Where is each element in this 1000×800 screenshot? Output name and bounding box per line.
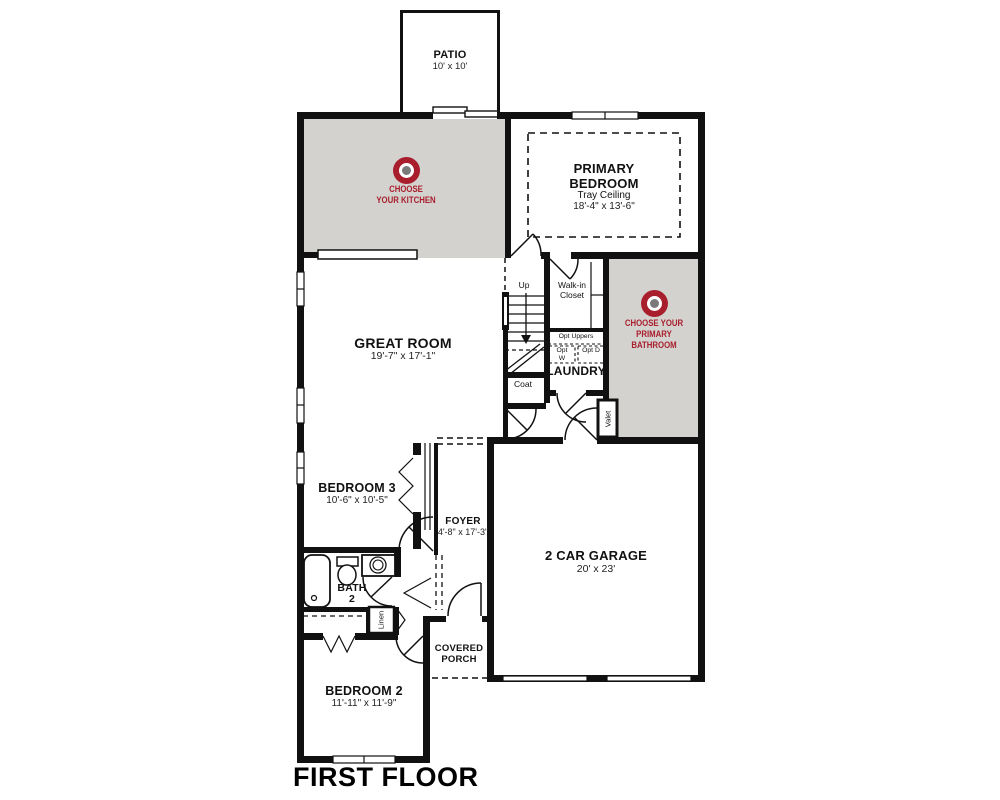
label-covered-porch: COVERED PORCH bbox=[431, 644, 487, 665]
floor-plan-drawing bbox=[0, 0, 1000, 800]
label-primary-bedroom-note: Tray Ceiling bbox=[578, 190, 631, 201]
label-garage: 2 CAR GARAGE bbox=[545, 549, 647, 564]
bath2-door bbox=[363, 577, 392, 606]
floor-title: FIRST FLOOR bbox=[293, 762, 478, 793]
label-opt-dryer: Opt D bbox=[582, 347, 600, 355]
label-bath2-number: 2 bbox=[349, 594, 355, 606]
floor-plan: PATIO 10' x 10' PRIMARY BEDROOM Tray Cei… bbox=[0, 0, 1000, 800]
label-great-room-dims: 19'-7" x 17'-1" bbox=[371, 351, 436, 363]
choose-kitchen-target-icon[interactable] bbox=[393, 157, 420, 184]
hall-door bbox=[506, 409, 536, 439]
label-opt-uppers: Opt Uppers bbox=[559, 333, 594, 341]
choose-kitchen-text-line2[interactable]: YOUR KITCHEN bbox=[376, 196, 435, 207]
label-bedroom2-dims: 11'-11" x 11'-9" bbox=[332, 698, 397, 709]
kitchen-counter bbox=[318, 250, 417, 259]
choose-primary-bath-text-line3[interactable]: BATHROOM bbox=[631, 341, 676, 352]
window bbox=[572, 112, 638, 119]
bedroom3-closet-bifold-door bbox=[399, 458, 413, 514]
label-opt-washer: Opt W bbox=[553, 347, 571, 362]
label-bedroom3: BEDROOM 3 bbox=[318, 481, 396, 495]
bathtub bbox=[304, 555, 330, 607]
label-bedroom3-dims: 10'-6" x 10'-5" bbox=[326, 495, 388, 506]
label-foyer-dims: 4'-8" x 17'-3" bbox=[438, 527, 488, 537]
window bbox=[297, 388, 304, 423]
primary-bedroom-door bbox=[511, 234, 541, 256]
label-foyer: FOYER bbox=[445, 516, 480, 527]
laundry-door bbox=[557, 393, 586, 422]
stairs bbox=[505, 293, 544, 378]
label-patio-dims: 10' x 10' bbox=[433, 62, 468, 73]
front-door bbox=[448, 583, 481, 616]
label-patio: PATIO bbox=[434, 49, 467, 61]
window bbox=[297, 452, 304, 484]
window bbox=[297, 272, 304, 306]
walkin-closet-door bbox=[550, 259, 578, 279]
bedroom2-closet-doors bbox=[323, 636, 355, 652]
label-primary-bedroom: PRIMARY BEDROOM bbox=[552, 162, 656, 191]
hall-bifold-door bbox=[404, 578, 431, 608]
choose-primary-bath-target-icon[interactable] bbox=[641, 290, 668, 317]
label-walkin-closet: Walk-in Closet bbox=[549, 281, 595, 300]
bathtub-drain bbox=[312, 596, 317, 601]
label-linen: Linen bbox=[377, 611, 386, 629]
label-bedroom2: BEDROOM 2 bbox=[325, 684, 403, 698]
label-garage-dims: 20' x 23' bbox=[577, 564, 615, 576]
garage-entry-door bbox=[565, 408, 597, 440]
primary-bath-highlight-lower bbox=[618, 400, 698, 437]
label-valet: Valet bbox=[604, 411, 613, 428]
bedroom2-door bbox=[396, 636, 423, 663]
label-laundry: LAUNDRY bbox=[546, 365, 606, 378]
label-up: Up bbox=[519, 281, 530, 291]
stair-rail bbox=[504, 258, 507, 325]
label-coat: Coat bbox=[514, 380, 532, 390]
label-primary-bedroom-dims: 18'-4" x 13'-6" bbox=[573, 201, 635, 212]
